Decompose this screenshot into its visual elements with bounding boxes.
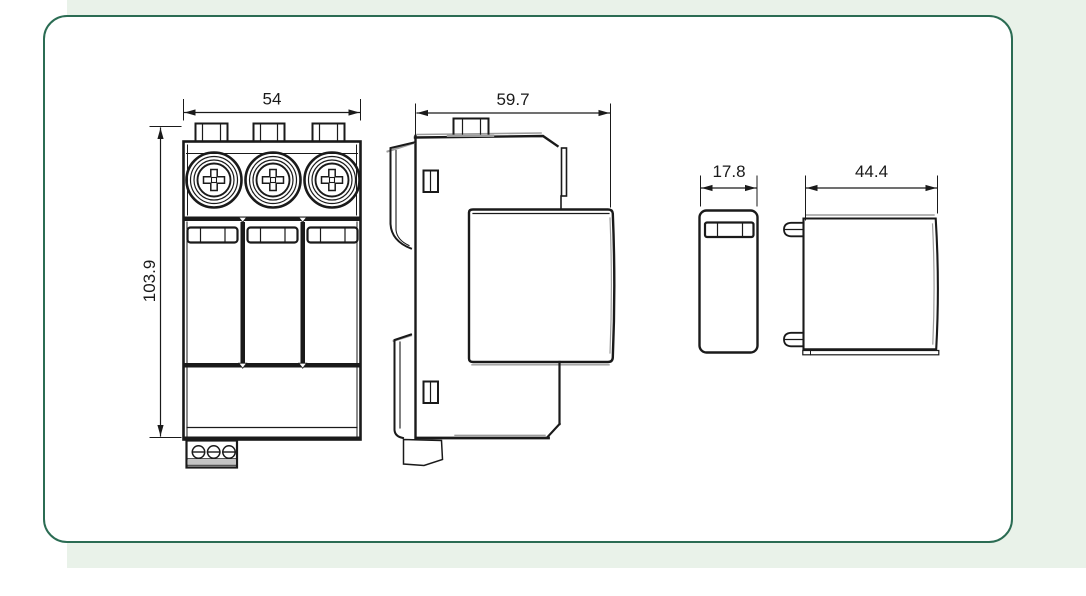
label-window <box>308 228 358 243</box>
module-separator <box>241 222 246 364</box>
dimension-plug-depth: 44.4 <box>806 162 938 220</box>
dimension-label-module-width: 17.8 <box>712 162 745 181</box>
dimension-side-depth: 59.7 <box>417 90 611 207</box>
base-block <box>184 428 361 441</box>
terminal-head <box>184 145 361 221</box>
dimension-plug-width: 17.8 <box>701 162 758 206</box>
dimension-label-front-width: 54 <box>263 90 282 109</box>
connector-pin <box>784 223 804 237</box>
plug-body <box>700 211 758 353</box>
slotted-screw <box>208 446 220 458</box>
terminal-screw <box>187 153 242 208</box>
side-view: 59.7 <box>388 90 615 466</box>
label-window <box>188 228 238 243</box>
slotted-screw <box>192 446 204 458</box>
vent-slot <box>424 171 439 193</box>
label-window <box>248 228 298 243</box>
module-bank <box>184 217 361 437</box>
plug-body <box>804 219 938 350</box>
module-separator <box>301 222 306 364</box>
plug-module-profile <box>469 210 614 365</box>
label-window <box>705 223 754 238</box>
terminal-bump <box>196 124 228 142</box>
terminal-screw <box>246 153 301 208</box>
vent-slot <box>424 382 439 404</box>
terminal-bump <box>313 124 345 142</box>
dimension-front-height: 103.9 <box>140 127 181 438</box>
dimension-label-side-depth: 59.7 <box>496 90 529 109</box>
terminal-screw <box>305 153 360 208</box>
connector-pin <box>784 333 804 347</box>
technical-drawing-canvas: <337.5 x1="337.5" y1="124" x2="337.5" y2… <box>0 0 1086 596</box>
terminal-bump <box>254 124 285 142</box>
housing-ledge <box>562 148 567 196</box>
slotted-screw <box>223 446 235 458</box>
bottom-terminal-block <box>187 441 238 468</box>
dimension-label-module-depth: 44.4 <box>855 162 888 181</box>
front-view: <337.5 x1="337.5" y1="124" x2="337.5" y2… <box>140 90 361 468</box>
plug-module-front-view: 17.8 <box>700 162 758 353</box>
dimension-front-width: 54 <box>184 90 361 121</box>
din-clip-foot <box>404 440 443 466</box>
plug-module-side-view: 44.4 <box>784 162 939 355</box>
terminal-bumps: <337.5 x1="337.5" y1="124" x2="337.5" y2… <box>196 124 345 142</box>
dimension-label-front-height: 103.9 <box>140 260 159 303</box>
